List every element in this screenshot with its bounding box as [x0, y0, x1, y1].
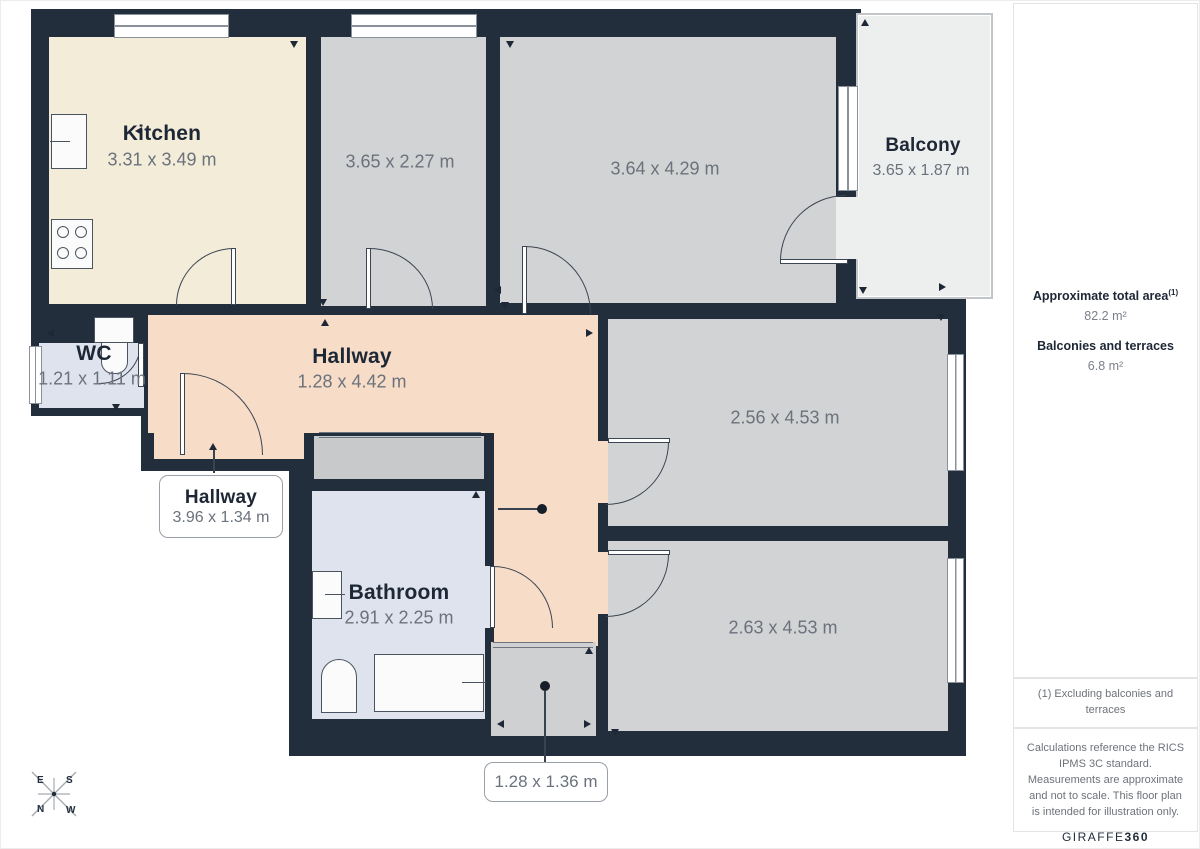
bathtub: [374, 654, 484, 712]
sidebar-info-panel: Approximate total area(1) 82.2 m² Balcon…: [1013, 3, 1198, 678]
dimension-arrow: [47, 329, 54, 337]
room-b-door-leaf: [522, 246, 527, 314]
burner: [75, 226, 87, 238]
hallway-label: Hallway: [312, 345, 392, 369]
room-a-dimensions: 3.65 x 2.27 m: [345, 152, 454, 173]
bathroom-label: Bathroom: [349, 581, 450, 605]
entrance-sliding-door: [493, 642, 593, 648]
area-summary: Approximate total area(1) 82.2 m² Balcon…: [1014, 288, 1197, 373]
burner: [57, 226, 69, 238]
balcony-label: Balcony: [885, 135, 960, 157]
room-b-dimensions: 3.64 x 4.29 m: [610, 159, 719, 180]
bathroom-sink-line: [325, 594, 345, 595]
window-room-b-balcony: [838, 86, 858, 191]
balcony-door-leaf: [780, 259, 848, 264]
dimension-arrow: [321, 319, 329, 326]
bathtub-line: [462, 682, 486, 683]
window-room-a-top: [351, 14, 477, 38]
wc-toilet-cistern: [94, 317, 134, 343]
total-area-title-text: Approximate total area: [1033, 289, 1168, 303]
entrance-dot: [540, 681, 550, 691]
dimension-arrow: [937, 314, 945, 321]
compass-north-label: N: [37, 804, 44, 815]
room-d-dimensions: 2.63 x 4.53 m: [728, 618, 837, 639]
burner: [75, 247, 87, 259]
hallway-lower-dimensions: 3.96 x 1.34 m: [173, 509, 270, 527]
hallway-lower-arrow-line: [213, 450, 215, 473]
dimension-arrow: [290, 41, 298, 48]
sidebar-disclaimer-panel: Calculations reference the RICS IPMS 3C …: [1013, 728, 1198, 832]
dimension-arrow: [472, 491, 480, 498]
storage-sliding-door: [319, 432, 481, 438]
room-d-door-leaf: [608, 550, 670, 555]
corridor-leader-line: [498, 508, 541, 510]
dimension-arrow: [501, 302, 509, 309]
dimension-arrow: [135, 127, 142, 135]
hallway-lower-label: Hallway: [185, 487, 257, 509]
kitchen-sink: [51, 114, 87, 169]
total-area-value: 82.2 m²: [1014, 309, 1197, 323]
dimension-arrow: [497, 720, 504, 728]
dimension-arrow: [859, 287, 867, 294]
bathroom-dimensions: 2.91 x 2.25 m: [344, 608, 453, 629]
brand-logo: GIRAFFE360: [1014, 830, 1197, 844]
kitchen-dimensions: 3.31 x 3.49 m: [107, 150, 216, 171]
footnote-text: (1) Excluding balconies and terraces: [1014, 687, 1197, 719]
sidebar-footnote-panel: (1) Excluding balconies and terraces: [1013, 678, 1198, 728]
compass-east-label: E: [37, 775, 44, 786]
balconies-value: 6.8 m²: [1014, 359, 1197, 373]
wc-dimensions: 1.21 x 1.11 m: [38, 369, 146, 390]
entrance-leader-line: [544, 691, 546, 763]
entrance-callout: 1.28 x 1.36 m: [484, 762, 608, 802]
compass-star-icon: [18, 758, 90, 830]
total-area-title: Approximate total area(1): [1014, 288, 1197, 303]
bathroom-sink: [312, 571, 342, 619]
dimension-arrow: [585, 647, 593, 654]
window-room-d-right: [947, 558, 964, 683]
room-c-door-leaf: [608, 438, 670, 443]
entrance-dimensions: 1.28 x 1.36 m: [494, 772, 597, 792]
hallway-lower-callout: Hallway 3.96 x 1.34 m: [159, 475, 283, 538]
balcony-dimensions: 3.65 x 1.87 m: [873, 162, 970, 180]
bathroom-toilet: [321, 659, 357, 713]
storage-floor: [314, 436, 484, 479]
hallway-dimensions: 1.28 x 4.42 m: [297, 372, 406, 393]
burner: [57, 247, 69, 259]
room-a-door-leaf: [366, 248, 371, 309]
brand-name: GIRAFFE: [1062, 830, 1125, 844]
kitchen-stove: [51, 219, 93, 269]
window-kitchen-top: [114, 14, 229, 38]
total-area-footnote-marker: (1): [1168, 288, 1178, 297]
wc-label: WC: [76, 342, 111, 366]
dimension-arrow: [494, 286, 501, 294]
floor-plan-canvas: Kitchen 3.31 x 3.49 m 3.65 x 2.27 m 3.64…: [0, 0, 1200, 849]
dimension-arrow: [584, 720, 591, 728]
dimension-arrow: [586, 329, 593, 337]
window-room-c-right: [947, 354, 964, 471]
hallway-lower-door-leaf: [180, 373, 185, 455]
hallway-lower-arrow-head: [209, 443, 217, 450]
dimension-arrow: [319, 299, 327, 306]
kitchen-door-leaf: [231, 248, 236, 305]
compass-south-label: S: [66, 775, 73, 786]
room-c-dimensions: 2.56 x 4.53 m: [730, 408, 839, 429]
dimension-arrow: [611, 729, 619, 736]
dimension-arrow: [112, 404, 120, 411]
balconies-title: Balconies and terraces: [1014, 339, 1197, 353]
dimension-arrow: [861, 19, 869, 26]
dimension-arrow: [939, 283, 946, 291]
kitchen-sink-line: [50, 141, 70, 142]
disclaimer-text: Calculations reference the RICS IPMS 3C …: [1014, 729, 1197, 821]
brand-number: 360: [1124, 830, 1149, 844]
dimension-arrow: [506, 41, 514, 48]
corridor-dot: [537, 504, 547, 514]
compass-west-label: W: [66, 805, 75, 816]
bathroom-door-leaf: [490, 566, 495, 628]
